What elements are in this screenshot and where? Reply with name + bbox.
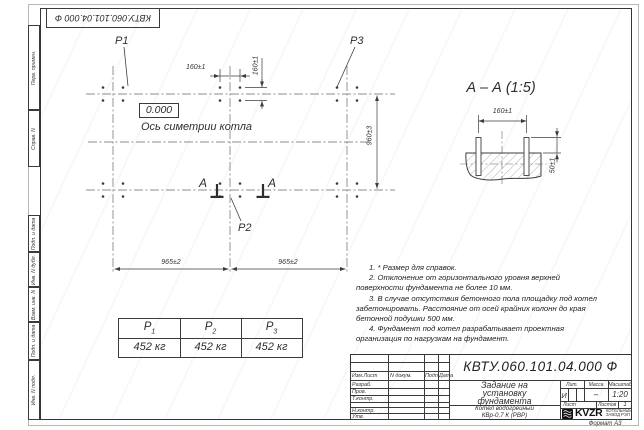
- note-3: 3. В случае отсутствия бетонного пола пл…: [356, 294, 608, 325]
- format-note: Формат А3: [578, 421, 632, 427]
- loads-table-value-1: 452 кг: [119, 341, 180, 353]
- level-mark-value: 0.000: [140, 104, 178, 117]
- p1-sub: 1: [151, 328, 155, 335]
- side-column-label: Перв. примен.: [31, 50, 37, 84]
- side-column-perv-primen: Перв. примен.: [28, 25, 40, 110]
- note-4: 4. Фундамент под котел разрабатывает про…: [356, 324, 608, 344]
- grid-line: [438, 354, 439, 420]
- tb-drawing-title: Задание на установку фундамента: [449, 381, 560, 406]
- kvzr-logo-subtext: КОТЕЛЬНЫЙ ЗАВОД РЭП: [606, 409, 632, 418]
- tb-product-name: Котел водогрейный КВр-0,7 К (РВР): [449, 406, 560, 420]
- tb-scale-label: Масштаб: [608, 382, 632, 388]
- grid-line: [424, 354, 425, 420]
- tb-row-prov: Пров.: [352, 389, 366, 395]
- section-letter-left: А: [199, 176, 207, 190]
- tb-mass-value: –: [584, 390, 608, 399]
- corner-stamp: КВТУ.060.101.04.000 Ф: [46, 8, 160, 28]
- loads-table-value-2: 452 кг: [180, 341, 241, 353]
- kvzr-logo-icon: [562, 409, 573, 419]
- tb-sheets-value: 1: [618, 402, 632, 408]
- drawing-sheet: КВТУ.060.101.04.000 Ф Перв. примен. Спра…: [0, 0, 644, 430]
- loads-table-header-p3: P3: [241, 321, 302, 335]
- side-column-label: Инв. N дубл.: [31, 254, 37, 284]
- grid-line: [350, 362, 449, 363]
- dim-965-right: 965±2: [266, 259, 310, 266]
- p2-sub: 2: [212, 328, 216, 335]
- note-1: 1. * Размер для справок.: [356, 263, 608, 273]
- loads-table-value-3: 452 кг: [241, 341, 302, 353]
- grid-line: [560, 388, 632, 389]
- grid-line: [568, 388, 569, 401]
- section-letter-right: А: [268, 176, 276, 190]
- level-mark-box: 0.000: [139, 103, 179, 118]
- side-column-label: Подп. и дата: [31, 325, 37, 357]
- tb-row-razrab: Разраб.: [352, 382, 372, 388]
- kvzr-sub-line-2: ЗАВОД РЭП: [606, 413, 632, 418]
- section-title: А – А (1:5): [443, 80, 559, 96]
- load-point-label-p2: P2: [238, 222, 251, 234]
- tb-lit-value: И: [560, 391, 568, 400]
- tb-row-utv: Утв.: [352, 414, 364, 420]
- tb-lit-label: Лит.: [560, 382, 584, 388]
- side-column-label: Подп. и дата: [31, 217, 37, 249]
- tb-col-n-dokum: N докум.: [390, 373, 412, 379]
- tb-scale-value: 1:20: [608, 390, 632, 399]
- side-column-inv-podl: Инв. N подл.: [28, 360, 40, 420]
- side-column-label: Инв. N подл.: [31, 375, 37, 405]
- section-dim-50: 50±1: [550, 151, 557, 181]
- tb-col-izm-list: Изм.Лист: [352, 373, 377, 379]
- load-point-label-p3: P3: [350, 35, 363, 47]
- side-column-podp-data-2: Подп. и дата: [28, 322, 40, 360]
- dim-965-left: 965±2: [149, 259, 193, 266]
- p3-sub: 3: [273, 328, 277, 335]
- dim-160-horizontal: 160±1: [186, 64, 205, 71]
- boiler-axis-label: Ось симетрии котла: [141, 121, 252, 133]
- side-column-label: Взам. инв. N: [31, 289, 37, 319]
- side-column-sprav-n: Справ. N: [28, 110, 40, 167]
- corner-stamp-text: КВТУ.060.101.04.000 Ф: [47, 9, 159, 27]
- loads-table-header-p2: P2: [180, 321, 241, 335]
- side-column-inv-dubl: Инв. N дубл.: [28, 252, 40, 287]
- loads-table: P1 P2 P3 452 кг 452 кг 452 кг: [118, 318, 303, 358]
- tb-row-tkontr: Т.контр.: [352, 396, 374, 402]
- load-point-label-p1: P1: [115, 35, 128, 47]
- grid-line: [388, 354, 389, 420]
- side-column-podp-data-1: Подп. и дата: [28, 215, 40, 252]
- tb-doc-number: КВТУ.060.101.04.000 Ф: [449, 354, 632, 380]
- loads-table-header-p1: P1: [119, 321, 180, 335]
- section-dim-160: 160±1: [485, 108, 520, 115]
- dim-960: 960±3: [367, 118, 374, 154]
- notes-block: 1. * Размер для справок. 2. Отклонение о…: [356, 263, 608, 345]
- grid-line: [350, 371, 449, 372]
- company-cell: KVZR КОТЕЛЬНЫЙ ЗАВОД РЭП: [561, 408, 631, 419]
- kvzr-logo-text: KVZR: [575, 407, 602, 419]
- tb-product-line-2: КВр-0,7 К (РВР): [449, 413, 560, 420]
- tb-mass-label: Масса: [584, 382, 608, 388]
- side-column-label: Справ. N: [31, 128, 37, 150]
- dim-160-vertical: 160±1: [253, 50, 260, 82]
- grid-line: [576, 388, 577, 401]
- side-column-vzam-inv: Взам. инв. N: [28, 287, 40, 322]
- note-2: 2. Отклонение от горизонтального уровня …: [356, 273, 608, 293]
- grid-line: [350, 402, 449, 403]
- tb-col-podp: Подп.: [425, 373, 439, 379]
